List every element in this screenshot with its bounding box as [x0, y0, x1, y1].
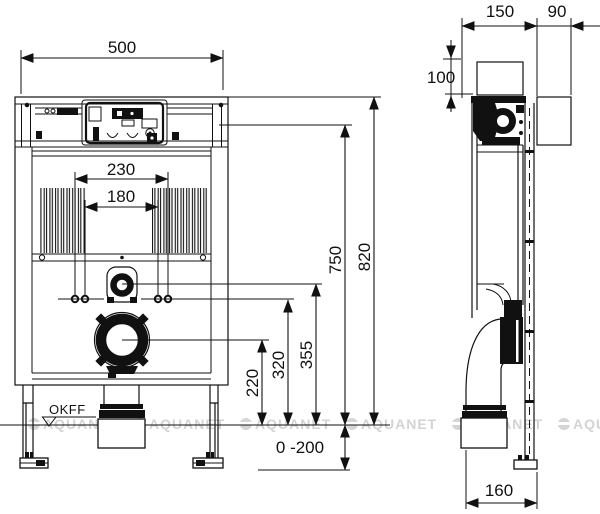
dim-overall-width-label: 500: [108, 38, 136, 57]
drawing-canvas: OKFF: [0, 0, 600, 514]
floor-level-marker: OKFF: [42, 402, 96, 426]
dim-bolt-inner-label: 180: [107, 187, 135, 206]
dim-top-label: 100: [427, 68, 455, 87]
side-view: [461, 62, 571, 469]
flush-mechanism-side: [473, 103, 524, 145]
dim-cistern-height-label: 750: [326, 246, 345, 274]
rib-panel-right: [152, 188, 208, 253]
waste-outlet: [95, 313, 150, 375]
dim-bolt-outer-label: 230: [107, 160, 135, 179]
dim-flushpipe-height-label: 355: [297, 341, 316, 369]
dim-rear-label: 90: [548, 2, 567, 21]
dim-bolt-height-label: 320: [269, 351, 288, 379]
dim-frame-height-label: 820: [355, 243, 374, 271]
drain-pipe-front: [98, 385, 145, 448]
dim-outlet-label: 160: [485, 481, 513, 500]
flush-pipe-connector: [107, 267, 137, 303]
waste-elbow-side: [461, 317, 523, 448]
rib-panel-left: [40, 188, 86, 253]
inspection-window: [82, 100, 167, 145]
dim-waste-height-label: 220: [243, 369, 262, 397]
okff-label: OKFF: [49, 402, 86, 417]
dim-leg-range-label: 0 -200: [276, 438, 324, 457]
dim-depth-label: 150: [486, 2, 514, 21]
front-view: OKFF: [15, 97, 228, 468]
technical-drawing: AQUANET AQUANET AQUANET AQUANET AQUANET …: [0, 0, 600, 514]
